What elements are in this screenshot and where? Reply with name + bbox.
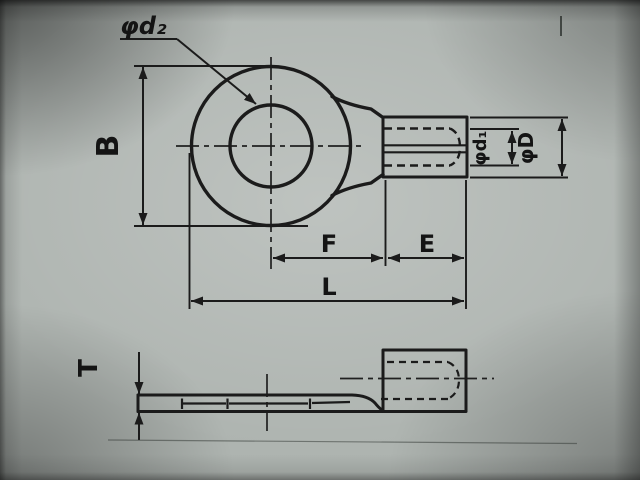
barrel-outline xyxy=(383,117,467,177)
seam-segment xyxy=(312,402,350,403)
label-phi-d2: φd₂ xyxy=(120,12,167,40)
label-L: L xyxy=(321,273,336,301)
front-view: φd₂ B F E L φd₁ φD xyxy=(91,12,568,309)
page-rule-line xyxy=(108,440,577,444)
catalog-drawing-photo: φd₂ B F E L φd₁ φD xyxy=(0,0,640,480)
ring-terminal-dimension-drawing: φd₂ B F E L φd₁ φD xyxy=(0,0,640,480)
label-phi-d1: φd₁ xyxy=(470,131,491,166)
side-view: T xyxy=(74,350,494,440)
bore-bellmouth-hidden-arc xyxy=(450,129,460,166)
side-barrel-outline xyxy=(383,350,466,411)
label-phi-D: φD xyxy=(514,132,538,164)
side-bore-bellmouth-hidden-arc xyxy=(448,362,459,399)
label-F: F xyxy=(321,230,337,258)
label-B: B xyxy=(91,135,126,158)
label-T: T xyxy=(74,359,104,377)
label-E: E xyxy=(419,230,435,258)
tongue-serration-seam xyxy=(182,399,350,410)
